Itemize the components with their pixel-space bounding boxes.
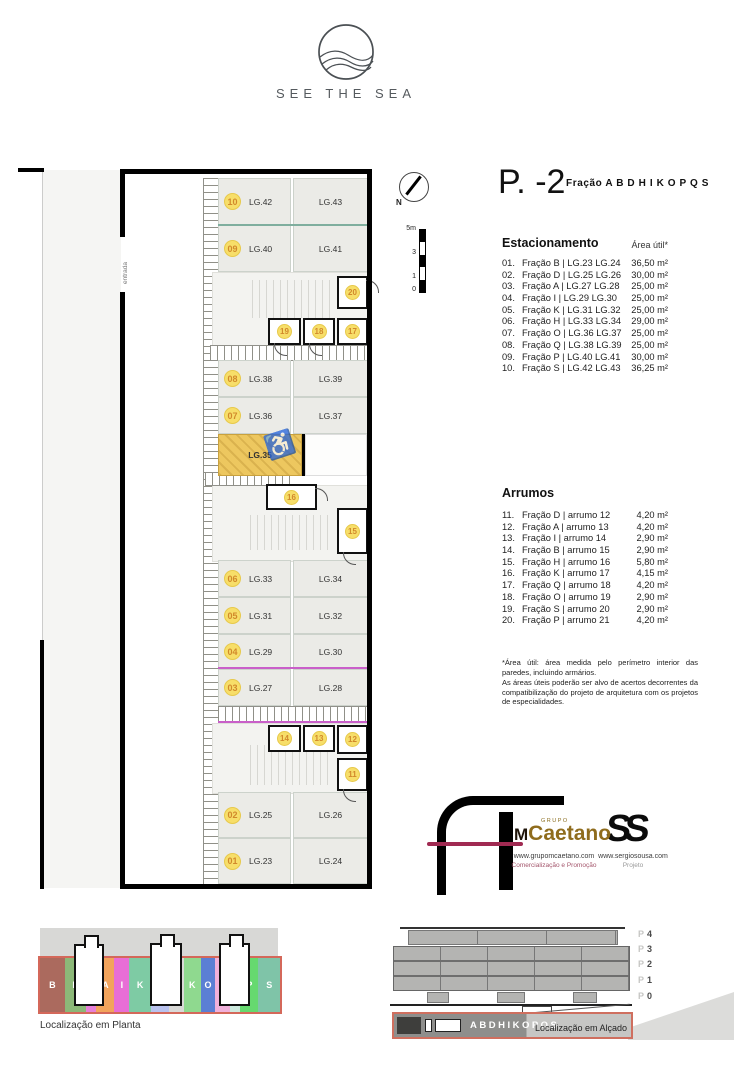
scale-tick-label: 5m: [398, 225, 416, 232]
wall: [120, 169, 125, 237]
parking-space-label: LG.36: [249, 411, 272, 421]
parking-cell: LG.24: [293, 838, 368, 884]
fraction-segment: K: [184, 958, 201, 1012]
storage-room: 17: [337, 318, 368, 345]
hatch-band: [218, 706, 367, 722]
parking-badge: 05: [224, 607, 241, 624]
parking-cell: LG.37: [293, 397, 368, 434]
list-row: 19.Fração S | arrumo 202,90 m²: [502, 604, 668, 616]
storage-badge: 20: [345, 285, 360, 300]
parking-cell: 08 LG.38: [218, 360, 291, 397]
row-label: Fração O | arrumo 19: [522, 592, 611, 602]
row-label: Fração I | LG.29 LG.30: [522, 293, 617, 303]
parking-cell: LG.30: [293, 634, 368, 669]
parking-row: 06 LG.33 LG.34: [218, 560, 368, 597]
parking-space-label: LG.32: [319, 611, 342, 621]
parking-space-label: LG.43: [319, 197, 342, 207]
caetano-contact: www.grupomcaetano.com Comercialização e …: [492, 853, 616, 869]
parking-space-label: LG.42: [249, 197, 272, 207]
row-label: Fração I | arrumo 14: [522, 533, 606, 543]
parking-cell: 03 LG.27: [218, 669, 291, 706]
row-label: Fração P | arrumo 21: [522, 615, 610, 625]
row-number: 05.: [502, 305, 522, 315]
row-number: 18.: [502, 592, 522, 602]
parking-badge: 08: [224, 370, 241, 387]
row-label: Fração S | LG.42 LG.43: [522, 363, 621, 373]
basement-highlight-strip: ABDHIKOPQS Localização em Alçado: [392, 1012, 633, 1039]
fraction-segment: O: [201, 958, 216, 1012]
parking-cell: 10 LG.42: [218, 178, 291, 225]
storage-badge: 18: [312, 324, 327, 339]
storage-badge: 13: [312, 731, 327, 746]
parking-cell: 06 LG.33: [218, 560, 291, 597]
hatch-band: [210, 345, 367, 361]
floor-label: P0: [638, 991, 652, 1001]
list-row: 05.Fração K | LG.31 LG.3225,00 m²: [502, 305, 668, 317]
parking-cell: LG.41: [293, 225, 368, 272]
parking-space-label: LG.38: [249, 374, 272, 384]
parking-row: 04 LG.29 LG.30: [218, 634, 368, 669]
row-number: 11.: [502, 510, 522, 520]
row-area: 2,90 m²: [636, 604, 668, 614]
row-number: 08.: [502, 340, 522, 350]
row-number: 13.: [502, 533, 522, 543]
row-area: 2,90 m²: [636, 533, 668, 543]
fraction-segment: B: [40, 958, 65, 1012]
storage-room: 12: [337, 725, 368, 754]
parking-row: 10 LG.42 LG.43: [218, 178, 368, 225]
parking-space-label: LG.30: [319, 647, 342, 657]
storage-room: 15: [337, 508, 368, 554]
list-row: 13.Fração I | arrumo 142,90 m²: [502, 533, 668, 545]
row-area: 2,90 m²: [636, 592, 668, 602]
parking-space-label: LG.39: [319, 374, 342, 384]
storage-badge: 19: [277, 324, 292, 339]
parking-badge: 10: [224, 193, 241, 210]
row-area: 4,20 m²: [636, 615, 668, 625]
parking-row: 01 LG.23 LG.24: [218, 838, 368, 884]
list-row: 07.Fração O | LG.36 LG.3725,00 m²: [502, 328, 668, 340]
parking-cell: LG.26: [293, 792, 368, 838]
wall: [120, 169, 372, 174]
parking-badge: 04: [224, 643, 241, 660]
scale-tick-label: 3: [398, 249, 416, 256]
caetano-crimson-line: [427, 842, 523, 846]
parking-cell: 02 LG.25: [218, 792, 291, 838]
row-label: Fração K | arrumo 17: [522, 568, 610, 578]
row-area: 36,50 m²: [631, 258, 668, 268]
list-row: 09.Fração P | LG.40 LG.4130,00 m²: [502, 352, 668, 364]
loc-planta-label: Localização em Planta: [40, 1020, 141, 1031]
wall: [367, 169, 372, 889]
storage-room: 16: [266, 484, 317, 510]
storage-list-title: Arrumos: [502, 486, 554, 500]
row-label: Fração H | arrumo 16: [522, 557, 610, 567]
row-number: 19.: [502, 604, 522, 614]
parking-space-label: LG.37: [319, 411, 342, 421]
parking-space-label: LG.28: [319, 683, 342, 693]
row-label: Fração O | LG.36 LG.37: [522, 328, 622, 338]
parking-badge: 02: [224, 807, 241, 824]
row-number: 12.: [502, 522, 522, 532]
parking-cell: 09 LG.40: [218, 225, 291, 272]
caetano-m: M: [514, 825, 528, 845]
row-area: 25,00 m²: [631, 340, 668, 350]
parking-space-label: LG.34: [319, 574, 342, 584]
parking-space-label: LG.29: [249, 647, 272, 657]
row-area: 30,00 m²: [631, 270, 668, 280]
row-number: 01.: [502, 258, 522, 268]
caetano-url: www.grupomcaetano.com: [492, 853, 616, 860]
list-row: 11.Fração D | arrumo 124,20 m²: [502, 510, 668, 522]
building-cutout: [150, 943, 182, 1006]
row-number: 14.: [502, 545, 522, 555]
ramp-area: [305, 434, 367, 476]
row-label: Fração Q | arrumo 18: [522, 580, 611, 590]
list-row: 03.Fração A | LG.27 LG.2825,00 m²: [502, 281, 668, 293]
row-area: 30,00 m²: [631, 352, 668, 362]
north-label: N: [396, 198, 402, 207]
see-the-sea-logo-icon: [316, 22, 376, 82]
list-row: 02.Fração D | LG.25 LG.2630,00 m²: [502, 270, 668, 282]
parking-badge: 01: [224, 853, 241, 870]
elevation-body: [393, 946, 630, 991]
parking-cell: 04 LG.29: [218, 634, 291, 669]
list-row: 14.Fração B | arrumo 152,90 m²: [502, 545, 668, 557]
caetano-wordmark: M Caetano: [514, 822, 611, 846]
accessible-parking-space: LG.35 ♿: [218, 434, 302, 476]
row-area: 25,00 m²: [631, 328, 668, 338]
storage-room: 13: [303, 725, 335, 752]
fraction-subtitle: Fração A B D H I K O P Q S: [566, 178, 709, 189]
utility-line: [218, 667, 367, 669]
entrance-driveway: [42, 170, 121, 888]
parking-cell: LG.28: [293, 669, 368, 706]
parking-space-label: LG.40: [249, 244, 272, 254]
wall: [302, 434, 305, 476]
parking-space-label: LG.31: [249, 611, 272, 621]
row-number: 16.: [502, 568, 522, 578]
row-area: 2,90 m²: [636, 545, 668, 555]
parking-row: 08 LG.38 LG.39: [218, 360, 368, 397]
parking-badge: 06: [224, 570, 241, 587]
row-label: Fração B | LG.23 LG.24: [522, 258, 621, 268]
area-column-header: Área útil*: [585, 240, 668, 250]
row-area: 4,20 m²: [636, 522, 668, 532]
footnote: *Área útil: área medida pelo perímetro i…: [502, 658, 698, 708]
entrada-label: entrada: [122, 262, 129, 284]
footnote-line: As áreas úteis poderão ser alvo de acert…: [502, 678, 698, 707]
row-number: 17.: [502, 580, 522, 590]
row-number: 15.: [502, 557, 522, 567]
list-row: 01.Fração B | LG.23 LG.2436,50 m²: [502, 258, 668, 270]
wall: [120, 292, 125, 889]
wall: [40, 640, 44, 889]
fraction-segment: S: [258, 958, 280, 1012]
basement-core-block: [397, 1017, 421, 1034]
list-row: 10.Fração S | LG.42 LG.4336,25 m²: [502, 363, 668, 375]
parking-row: 09 LG.40 LG.41: [218, 225, 368, 272]
row-label: Fração S | arrumo 20: [522, 604, 610, 614]
parking-cell: LG.32: [293, 597, 368, 634]
parking-cell: 07 LG.36: [218, 397, 291, 434]
basement-window: [435, 1019, 461, 1032]
building-cutout: [74, 944, 104, 1006]
elevation-p0-block: [427, 992, 449, 1003]
basement-window: [425, 1019, 432, 1032]
parking-space-label: LG.24: [319, 856, 342, 866]
storage-badge: 16: [284, 490, 299, 505]
list-row: 12.Fração A | arrumo 134,20 m²: [502, 522, 668, 534]
list-row: 17.Fração Q | arrumo 184,20 m²: [502, 580, 668, 592]
row-number: 07.: [502, 328, 522, 338]
parking-row: 05 LG.31 LG.32: [218, 597, 368, 634]
list-row: 08.Fração Q | LG.38 LG.3925,00 m²: [502, 340, 668, 352]
storage-badge: 11: [345, 767, 360, 782]
list-row: 06.Fração H | LG.33 LG.3429,00 m²: [502, 316, 668, 328]
parking-list: 01.Fração B | LG.23 LG.2436,50 m² 02.Fra…: [502, 258, 668, 375]
utility-line: [218, 721, 367, 723]
row-label: Fração D | arrumo 12: [522, 510, 610, 520]
floor-level-title: P. -2: [498, 163, 565, 202]
row-label: Fração D | LG.25 LG.26: [522, 270, 621, 280]
elevation-p0-block: [497, 992, 525, 1003]
floor-label: P1: [638, 975, 652, 985]
row-label: Fração P | LG.40 LG.41: [522, 352, 620, 362]
row-area: 36,25 m²: [631, 363, 668, 373]
parking-cell: 05 LG.31: [218, 597, 291, 634]
row-area: 29,00 m²: [631, 316, 668, 326]
row-label: Fração K | LG.31 LG.32: [522, 305, 621, 315]
storage-badge: 17: [345, 324, 360, 339]
row-label: Fração A | arrumo 13: [522, 522, 609, 532]
list-row: 18.Fração O | arrumo 192,90 m²: [502, 592, 668, 604]
stairs: [252, 280, 332, 318]
parking-badge: 09: [224, 240, 241, 257]
storage-badge: 15: [345, 524, 360, 539]
storage-list: 11.Fração D | arrumo 124,20 m² 12.Fração…: [502, 510, 668, 627]
wall: [18, 168, 44, 172]
plan-sheet: SEE THE SEA entrada entrada entrada 10 L…: [0, 0, 736, 1080]
parking-cell: LG.43: [293, 178, 368, 225]
floor-label: P4: [638, 929, 652, 939]
floor-label: P3: [638, 944, 652, 954]
floor-label: P2: [638, 959, 652, 969]
elevation-floor-p4: [408, 930, 618, 945]
storage-room: 19: [268, 318, 301, 345]
row-area: 5,80 m²: [636, 557, 668, 567]
row-number: 09.: [502, 352, 522, 362]
list-row: 04.Fração I | LG.29 LG.3025,00 m²: [502, 293, 668, 305]
list-row: 16.Fração K | arrumo 174,15 m²: [502, 568, 668, 580]
row-label: Fração H | LG.33 LG.34: [522, 316, 621, 326]
scale-tick-label: 0: [398, 286, 416, 293]
row-number: 02.: [502, 270, 522, 280]
caetano-logo-stem-icon: [499, 812, 513, 890]
parking-row: 02 LG.25 LG.26: [218, 792, 368, 838]
row-number: 10.: [502, 363, 522, 373]
elevation-roof: [400, 927, 625, 929]
row-area: 4,20 m²: [636, 580, 668, 590]
storage-room: 20: [337, 276, 368, 309]
row-number: 20.: [502, 615, 522, 625]
parking-badge: 07: [224, 407, 241, 424]
row-number: 06.: [502, 316, 522, 326]
bay-divider-line: [218, 224, 368, 226]
row-area: 4,15 m²: [636, 568, 668, 578]
row-area: 25,00 m²: [631, 293, 668, 303]
storage-room: 18: [303, 318, 335, 345]
parking-cell: LG.39: [293, 360, 368, 397]
building-cutout: [219, 943, 250, 1006]
elevation-p0-block: [573, 992, 597, 1003]
scale-bar: [419, 229, 426, 293]
row-area: 4,20 m²: [636, 510, 668, 520]
row-area: 25,00 m²: [631, 305, 668, 315]
parking-cell: LG.34: [293, 560, 368, 597]
parking-space-label: LG.23: [249, 856, 272, 866]
parking-space-label: LG.33: [249, 574, 272, 584]
storage-room: 14: [268, 725, 301, 752]
scale-tick-label: 1: [398, 273, 416, 280]
wall: [120, 884, 372, 889]
parking-space-label: LG.41: [319, 244, 342, 254]
caetano-tagline: Comercialização e Promoção: [492, 862, 616, 869]
parking-space-label: LG.27: [249, 683, 272, 693]
row-label: Fração B | arrumo 15: [522, 545, 610, 555]
row-label: Fração A | LG.27 LG.28: [522, 281, 620, 291]
storage-badge: 12: [345, 732, 360, 747]
list-row: 15.Fração H | arrumo 165,80 m²: [502, 557, 668, 569]
parking-cell: 01 LG.23: [218, 838, 291, 884]
loc-alcado-label: Localização em Alçado: [535, 1023, 627, 1033]
parking-badge: 03: [224, 679, 241, 696]
fraction-segment: I: [114, 958, 129, 1012]
row-number: 04.: [502, 293, 522, 303]
list-row: 20.Fração P | arrumo 214,20 m²: [502, 615, 668, 627]
stairs: [250, 515, 330, 550]
parking-space-label: LG.26: [319, 810, 342, 820]
caetano-name: Caetano: [528, 822, 611, 846]
fraction-segment: K: [129, 958, 151, 1012]
row-label: Fração Q | LG.38 LG.39: [522, 340, 622, 350]
storage-badge: 14: [277, 731, 292, 746]
parking-space-label: LG.25: [249, 810, 272, 820]
storage-room: 11: [337, 758, 368, 791]
row-number: 03.: [502, 281, 522, 291]
brand-name: SEE THE SEA: [266, 86, 426, 101]
row-area: 25,00 m²: [631, 281, 668, 291]
parking-row: 07 LG.36 LG.37: [218, 397, 368, 434]
parking-row: 03 LG.27 LG.28: [218, 669, 368, 706]
footnote-line: *Área útil: área medida pelo perímetro i…: [502, 658, 698, 677]
